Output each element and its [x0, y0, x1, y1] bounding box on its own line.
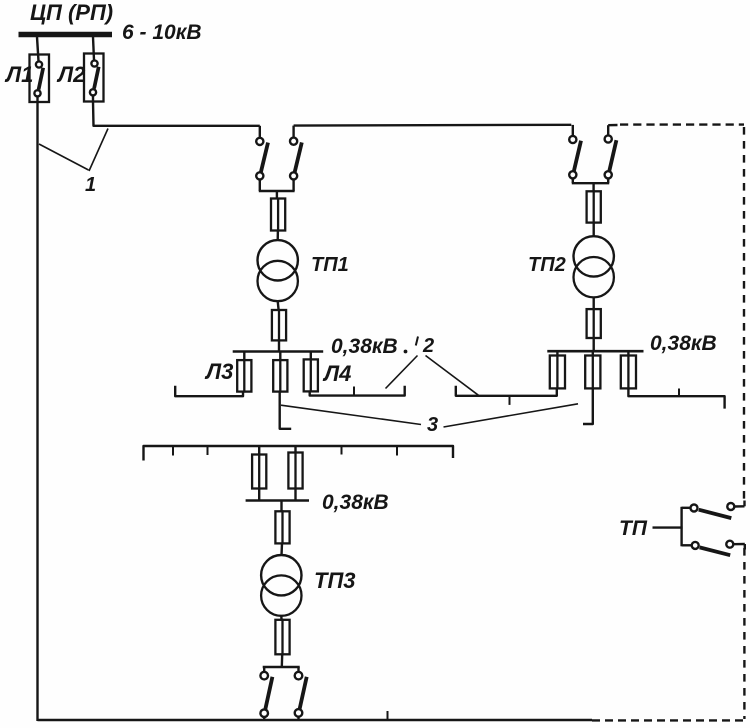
svg-text:0,38кВ: 0,38кВ: [322, 491, 389, 514]
svg-text:0,38кВ: 0,38кВ: [650, 332, 717, 355]
svg-text:Л3: Л3: [204, 359, 233, 384]
svg-text:6 - 10кВ: 6 - 10кВ: [122, 21, 202, 44]
svg-text:ЦП (РП): ЦП (РП): [30, 0, 113, 25]
svg-text:3: 3: [427, 414, 438, 436]
svg-text:ТП2: ТП2: [528, 254, 566, 276]
svg-text:ТП1: ТП1: [311, 254, 349, 276]
svg-text:Л2: Л2: [56, 62, 86, 87]
svg-text:1: 1: [85, 174, 96, 196]
svg-text:2: 2: [422, 335, 434, 357]
svg-text:ТП3: ТП3: [314, 568, 356, 593]
svg-text:Л1: Л1: [4, 62, 33, 87]
svg-text:ТП: ТП: [619, 517, 648, 540]
svg-text:Л4: Л4: [322, 361, 351, 386]
svg-text:0,38кВ: 0,38кВ: [331, 335, 398, 358]
